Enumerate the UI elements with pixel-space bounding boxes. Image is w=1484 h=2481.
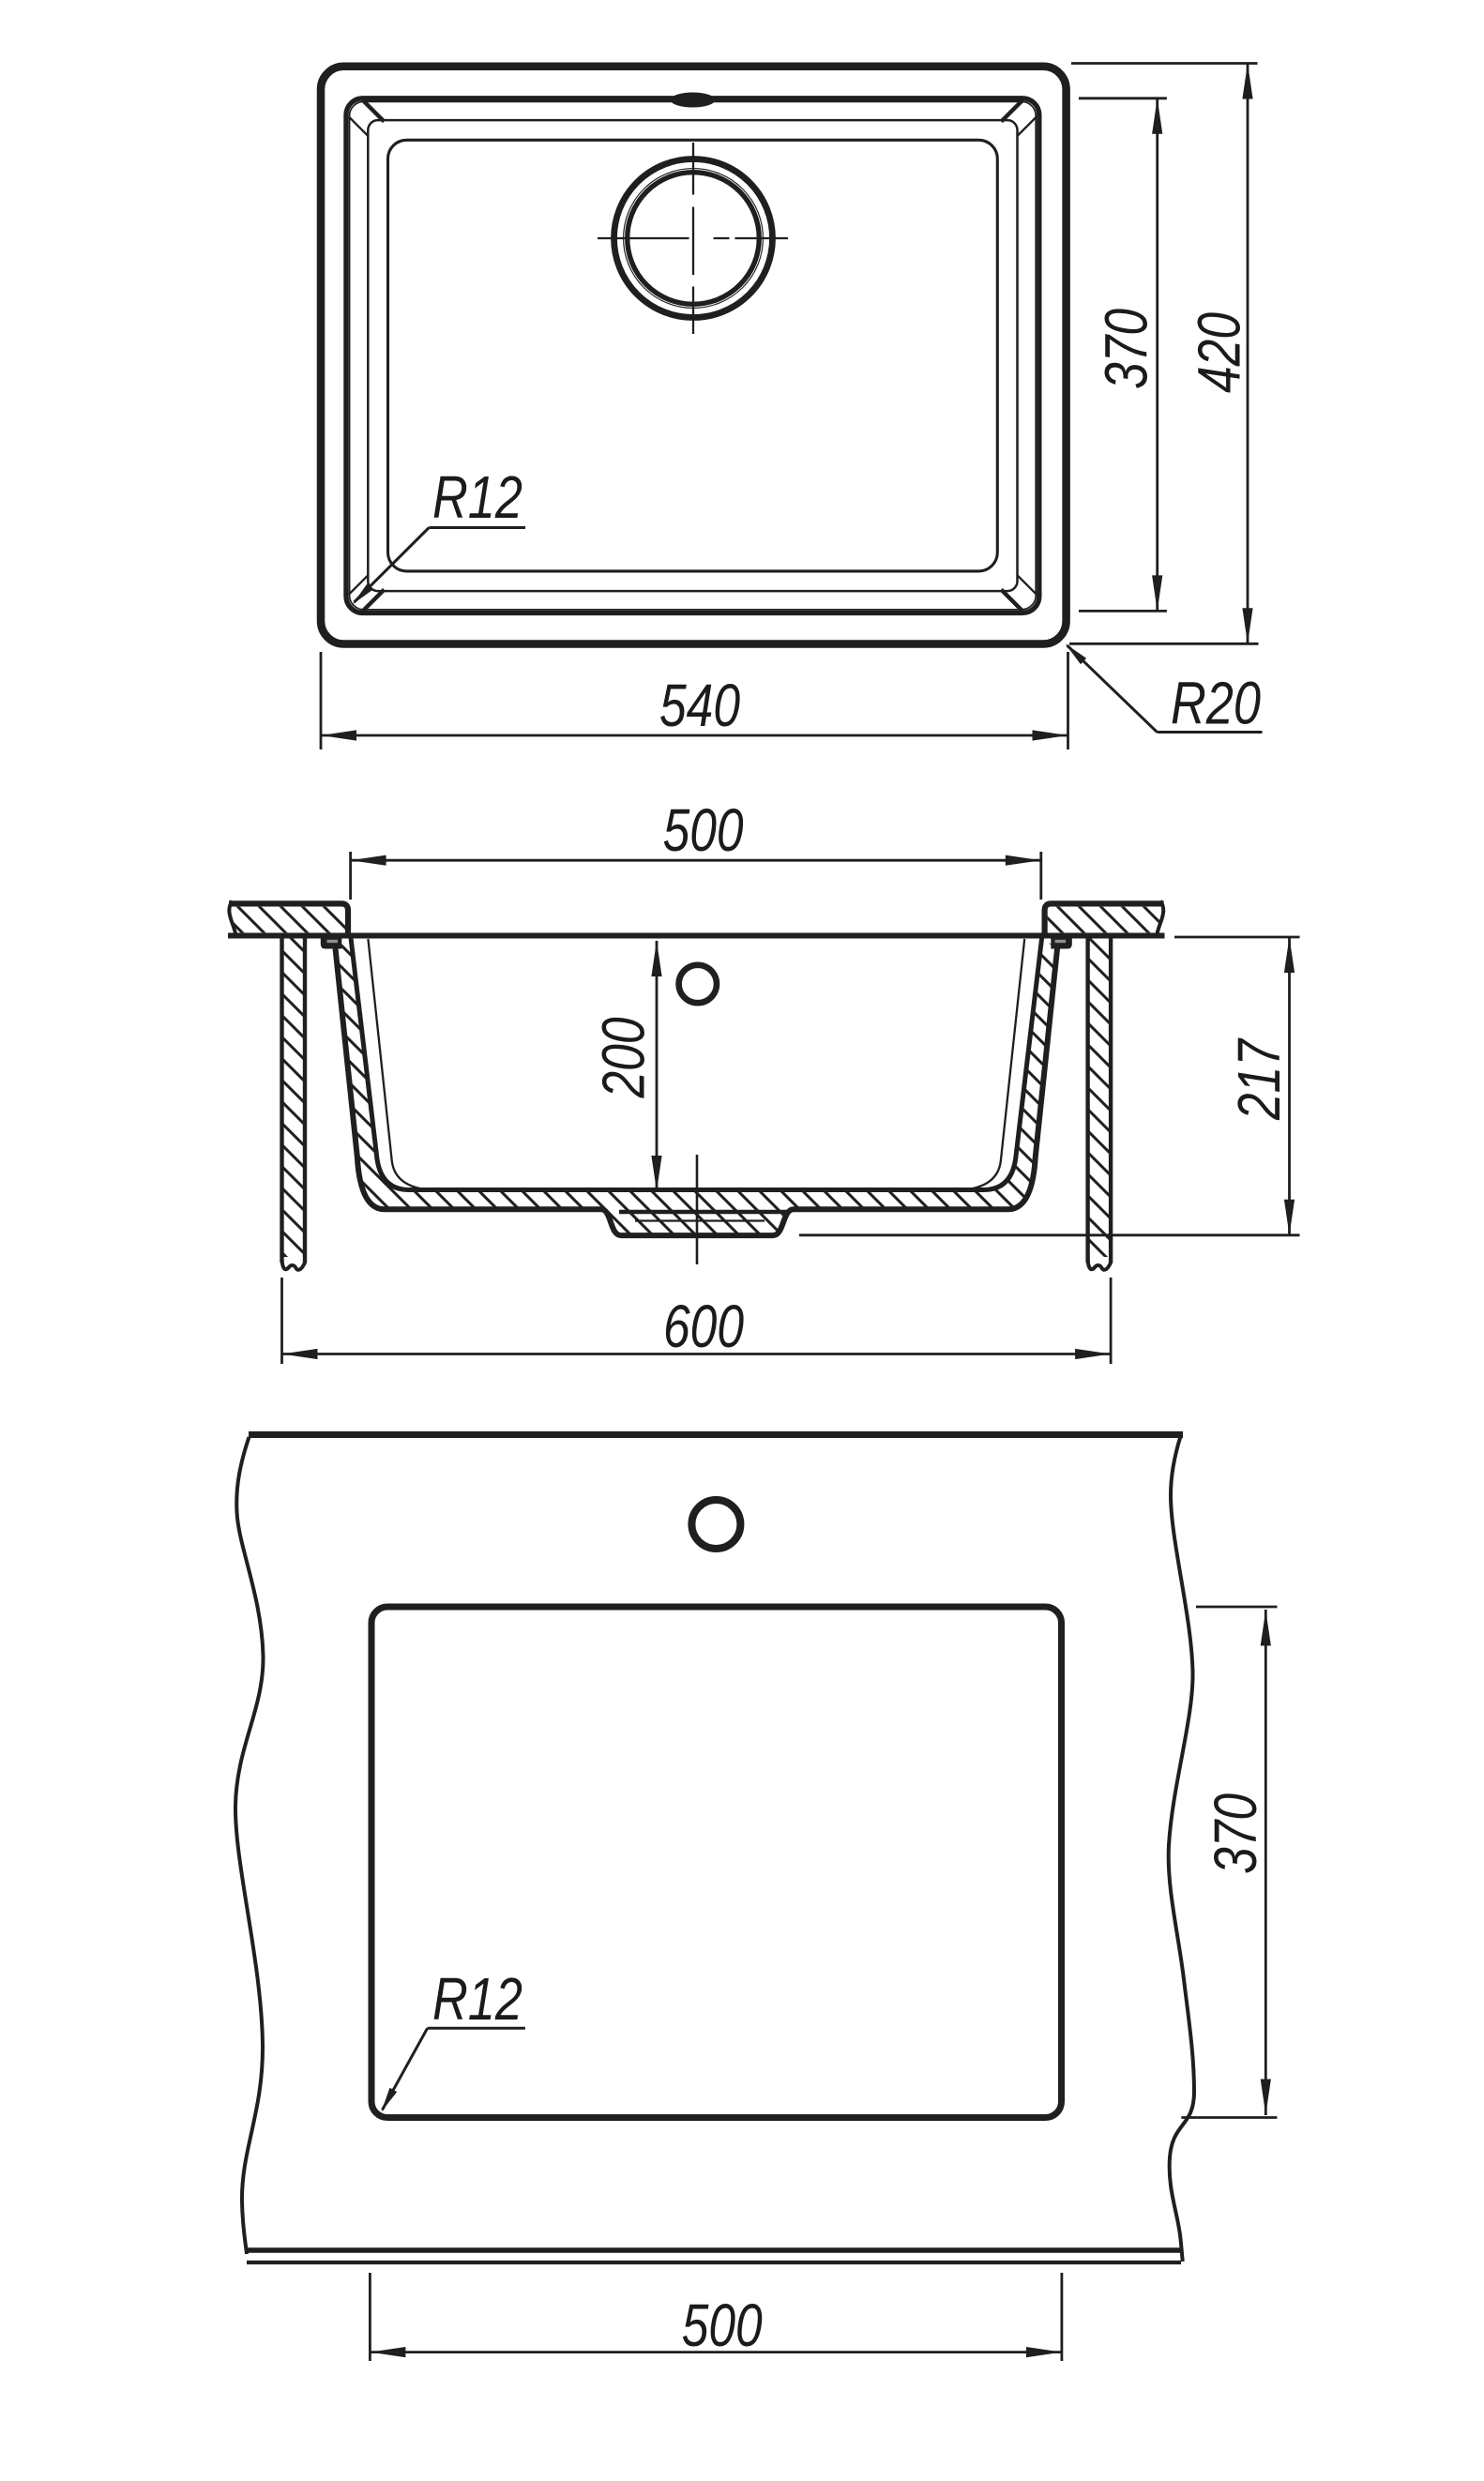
svg-text:370: 370	[1202, 1793, 1269, 1874]
svg-text:370: 370	[1093, 309, 1160, 389]
svg-text:R12: R12	[432, 463, 522, 531]
svg-text:217: 217	[1225, 1037, 1293, 1121]
svg-text:500: 500	[663, 796, 744, 864]
svg-text:200: 200	[590, 1017, 658, 1098]
svg-text:540: 540	[659, 672, 740, 739]
svg-text:600: 600	[663, 1293, 744, 1360]
svg-text:500: 500	[682, 2292, 763, 2359]
svg-text:R12: R12	[432, 1965, 522, 2033]
svg-text:R20: R20	[1171, 670, 1261, 737]
svg-text:420: 420	[1186, 312, 1253, 393]
